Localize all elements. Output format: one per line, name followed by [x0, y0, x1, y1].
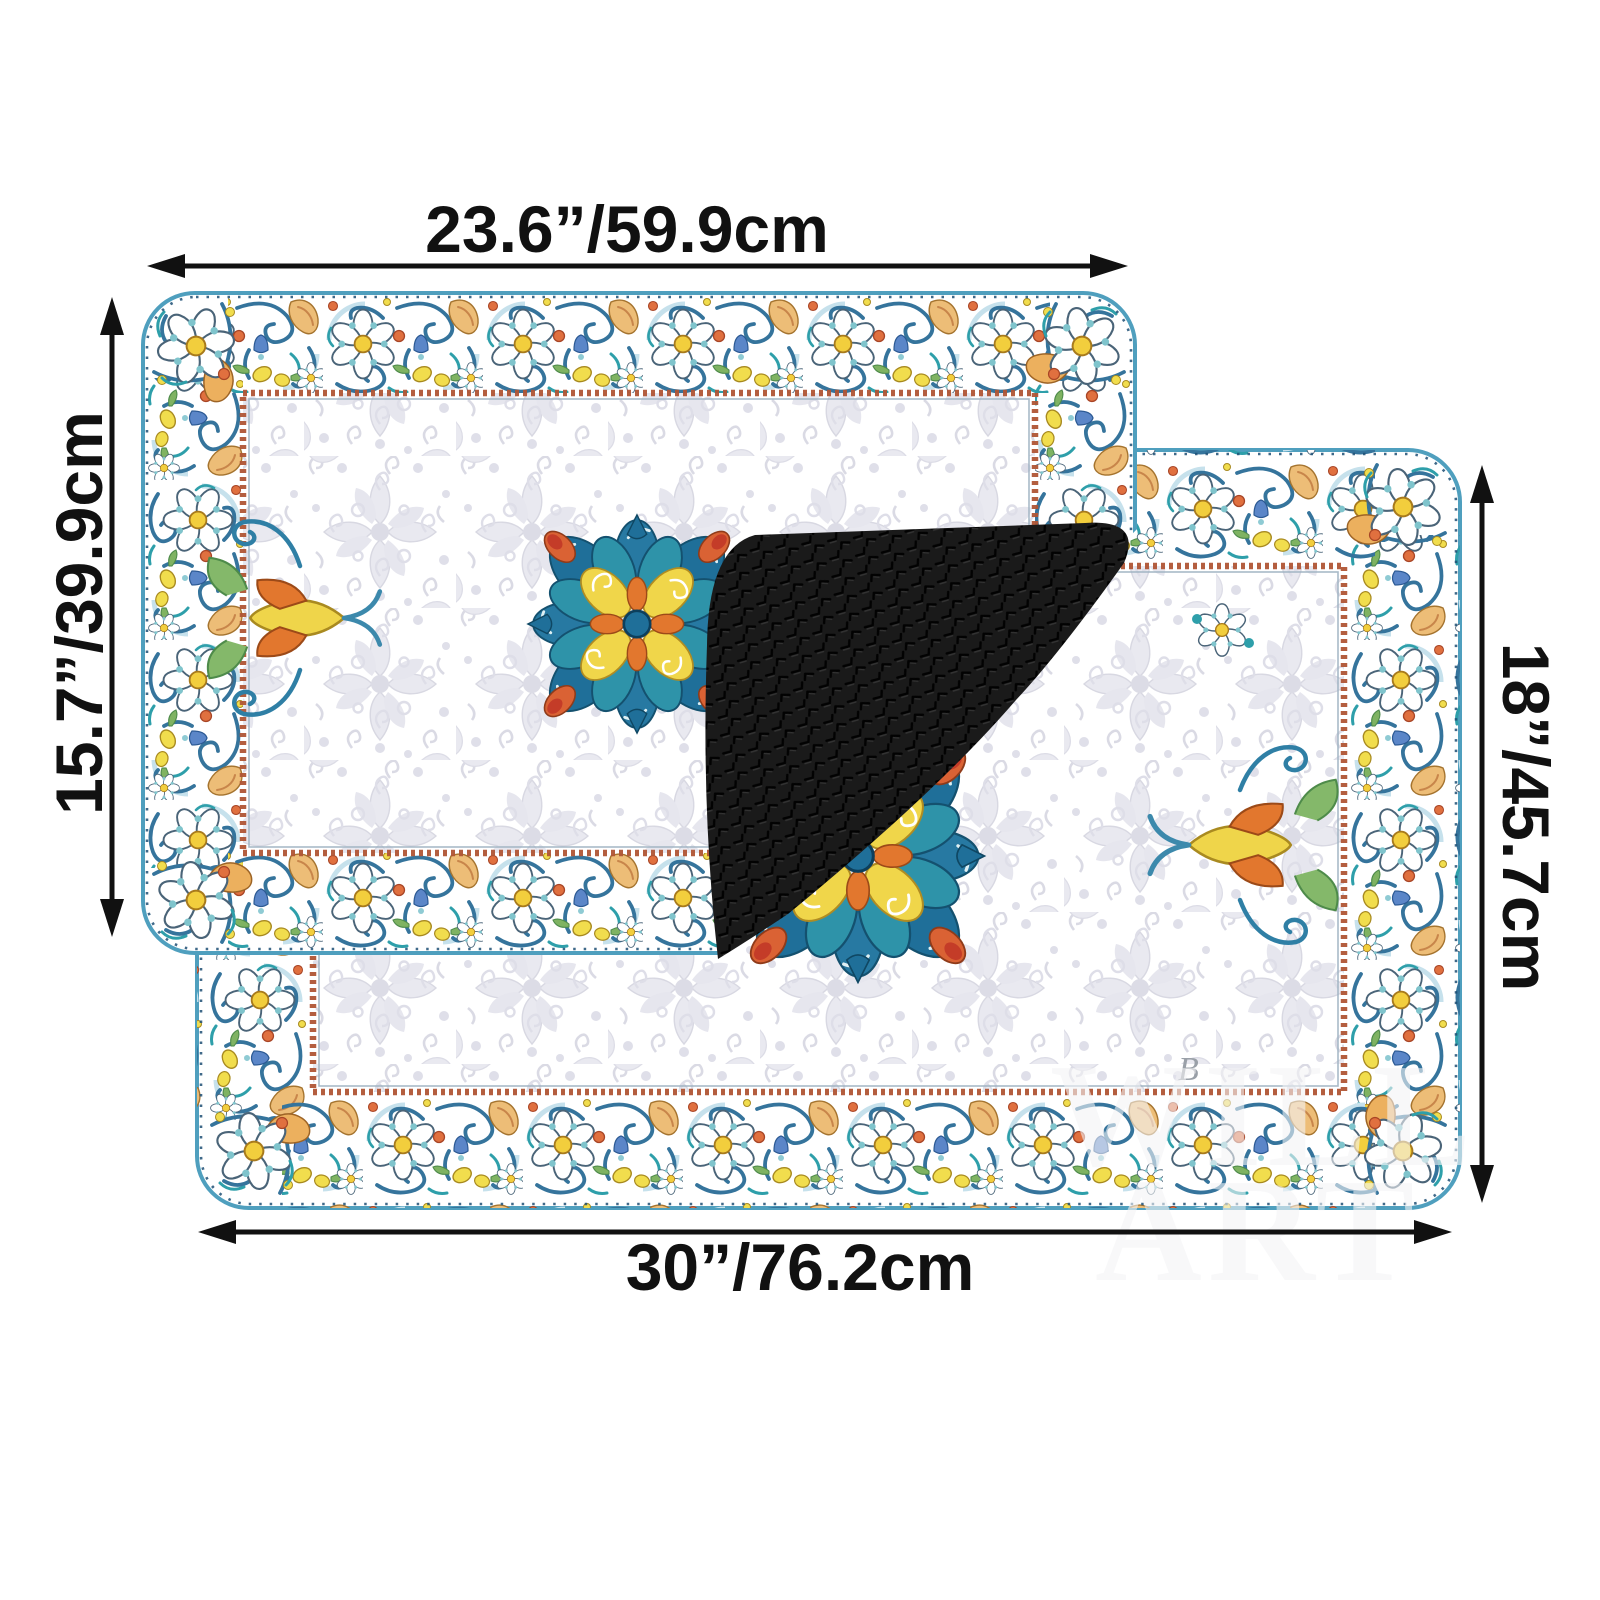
svg-text:30”/76.2cm: 30”/76.2cm — [626, 1230, 975, 1304]
svg-text:15.7”/39.9cm: 15.7”/39.9cm — [42, 411, 116, 815]
svg-text:23.6”/59.9cm: 23.6”/59.9cm — [425, 192, 829, 266]
svg-text:18”/45.7cm: 18”/45.7cm — [1489, 643, 1563, 992]
